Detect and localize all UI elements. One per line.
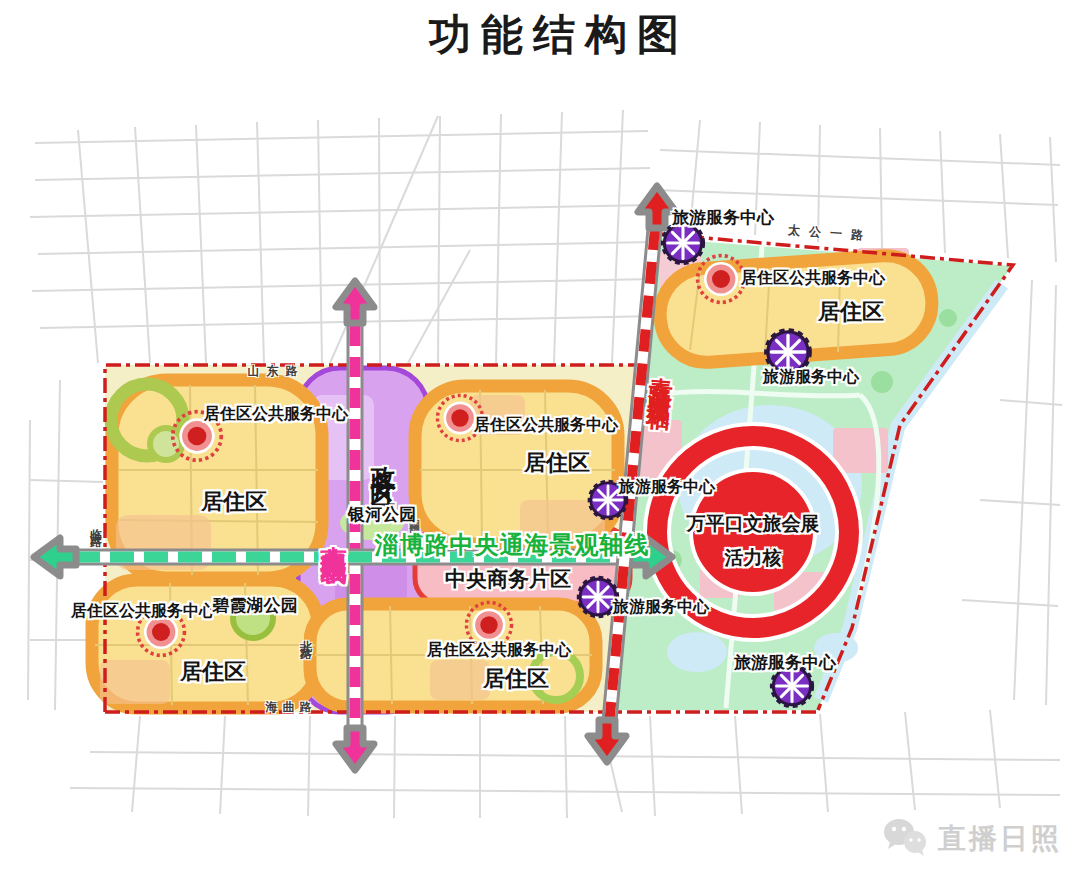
label-bixia-lake-park: 碧霞湖公园 bbox=[213, 597, 298, 614]
label-tourism-n: 旅游服务中心 bbox=[672, 209, 774, 226]
label-res-service-ne: 居住区公共服务中心 bbox=[741, 270, 885, 286]
public-service-center-icon bbox=[694, 252, 748, 310]
label-tourism-mid1: 旅游服务中心 bbox=[619, 479, 715, 495]
label-road-beijing: 北京路 bbox=[300, 630, 312, 642]
label-residential-ne: 居住区 bbox=[818, 301, 884, 323]
label-road-linyi: 临沂路 bbox=[90, 518, 102, 530]
watermark: 直播日照 bbox=[880, 816, 1062, 862]
functional-structure-map: 功能结构图 居住区 居住区 居住区 居住区 居住区 居住区公共服务中心 居住区公… bbox=[0, 0, 1080, 888]
label-axis-qingdao: 青岛路活力发展轴 bbox=[649, 358, 676, 392]
label-res-service-sw: 居住区公共服务中心 bbox=[71, 603, 215, 619]
label-road-shandong: 山东路 bbox=[248, 365, 305, 377]
label-tourism-ne: 旅游服务中心 bbox=[763, 369, 859, 385]
label-cbd: 中央商务片区 bbox=[445, 568, 571, 589]
label-road-haiqu: 海曲路 bbox=[266, 701, 317, 713]
wechat-bubbles-icon bbox=[880, 816, 932, 862]
axis-arrow-down bbox=[336, 728, 374, 770]
label-residential-nw: 居住区 bbox=[201, 491, 267, 513]
label-core-line2: 活力核 bbox=[725, 548, 782, 567]
label-tourism-s: 旅游服务中心 bbox=[734, 654, 836, 671]
watermark-text: 直播日照 bbox=[938, 820, 1062, 858]
label-residential-s: 居住区 bbox=[483, 668, 549, 690]
page-title: 功能结构图 bbox=[429, 7, 689, 63]
axis-arrow-up bbox=[336, 281, 374, 323]
label-residential-sw: 居住区 bbox=[180, 661, 246, 683]
label-res-service-nw: 居住区公共服务中心 bbox=[204, 406, 348, 422]
label-galaxy-park: 银河公园 bbox=[348, 506, 416, 523]
label-residential-central: 居住区 bbox=[524, 452, 590, 474]
label-government-district: 政务片区 bbox=[371, 446, 396, 470]
label-axis-tonghai: 淄博路中央通海景观轴线 bbox=[375, 533, 650, 557]
label-core-line1: 万平口文旅会展 bbox=[687, 514, 820, 533]
axis-arrow-left bbox=[34, 538, 76, 576]
label-tourism-mid2: 旅游服务中心 bbox=[613, 599, 709, 615]
label-res-service-s: 居住区公共服务中心 bbox=[427, 642, 571, 658]
label-res-service-central: 居住区公共服务中心 bbox=[474, 417, 618, 433]
label-axis-north-south: 南北向景观轴线 bbox=[321, 526, 347, 540]
basemap-graphics bbox=[0, 0, 1080, 888]
